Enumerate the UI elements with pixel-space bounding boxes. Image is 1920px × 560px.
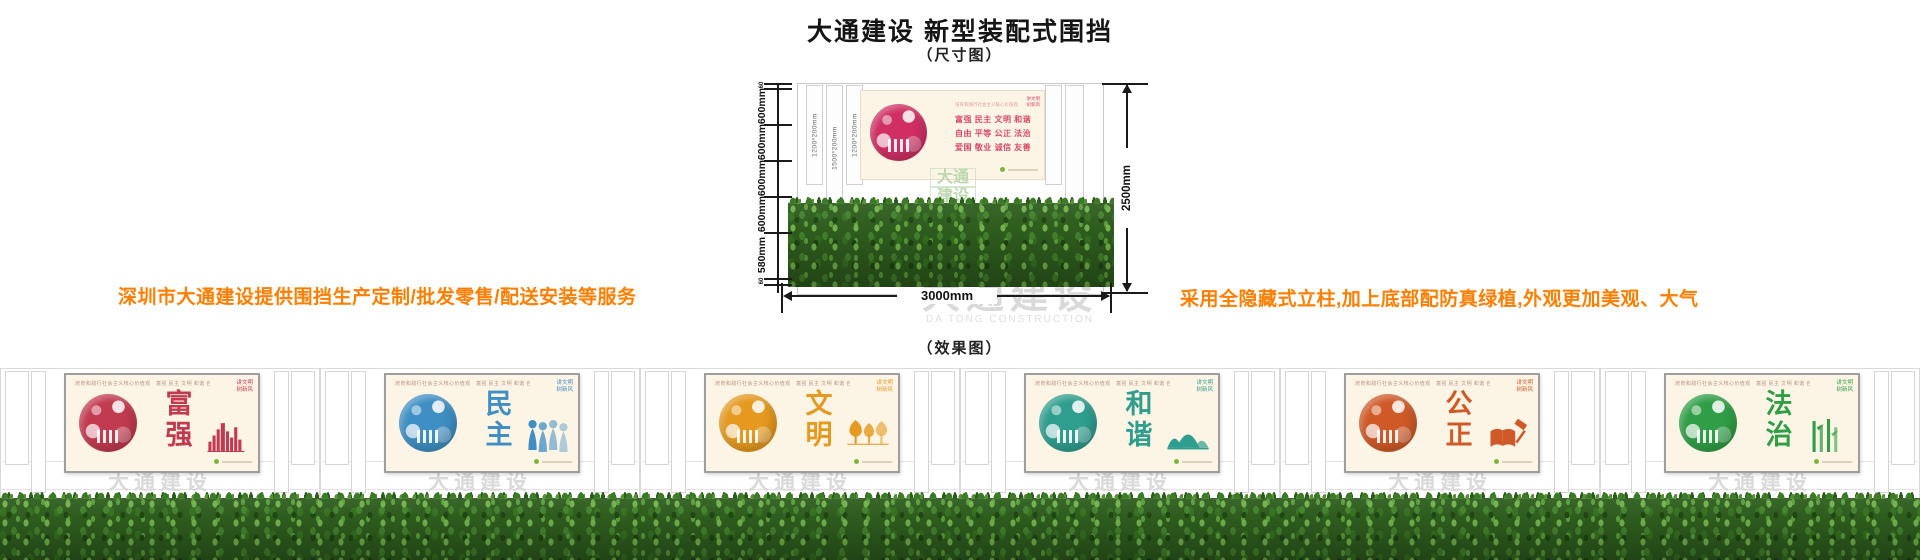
ruler-tick <box>764 284 792 286</box>
panel-corner-text: 讲文明 树新风 <box>876 380 893 394</box>
effect-caption: （效果图） <box>0 337 1920 358</box>
green-dot-icon <box>1000 167 1005 172</box>
hidden-post <box>611 371 635 465</box>
arrow-down-icon <box>1122 283 1132 292</box>
papercut-circle-illustration <box>1039 394 1097 452</box>
panel-footer-mark <box>534 459 572 464</box>
motif-icon <box>1167 419 1209 452</box>
left-ruler-line <box>777 83 779 293</box>
ruler-label: 60 <box>756 261 768 301</box>
motif-icon <box>847 419 889 452</box>
panel-footer-mark <box>1494 459 1532 464</box>
panel-corner-text: 讲文明 树新风 <box>1196 380 1213 394</box>
motif-icon <box>207 419 249 452</box>
panel-corner-text: 讲文明 树新风 <box>1027 96 1041 108</box>
hidden-post <box>1891 371 1915 465</box>
value-panel: 培育和践行社会主义核心价值观 富强 民主 文明 和谐 自由 平等 公正 法治 爱… <box>1024 373 1220 473</box>
poster-canvas: 大通建设 新型装配式围挡 （尺寸图） （效果图） 深圳市大通建设提供围挡生产定制… <box>0 0 1920 560</box>
ruler-tick <box>764 196 792 198</box>
hidden-post <box>1285 371 1309 465</box>
hidden-post <box>965 371 989 465</box>
green-dot-icon <box>1814 459 1819 464</box>
ruler-label: 600mm <box>756 194 768 234</box>
panel-header-text: 培育和践行社会主义核心价值观 富强 民主 文明 和谐 自由 平等 公正 法治 爱… <box>75 380 210 387</box>
value-word: 法 治 <box>1763 389 1795 451</box>
core-values-text: 富强 民主 文明 和谐 自由 平等 公正 法治 爱国 敬业 诚信 友善 <box>955 113 1031 155</box>
panel-corner-text: 讲文明 树新风 <box>1836 380 1853 394</box>
ruler-tick <box>764 232 792 234</box>
panel-corner-text: 讲文明 树新风 <box>556 380 573 394</box>
value-panel: 培育和践行社会主义核心价值观 富强 民主 文明 和谐 自由 平等 公正 法治 爱… <box>1664 373 1860 473</box>
panel-header-text: 培育和践行社会主义核心价值观 富强 民主 文明 和谐 自由 平等 公正 法治 爱… <box>1675 380 1810 387</box>
footer-line <box>1502 461 1532 463</box>
papercut-circle-illustration <box>399 394 457 452</box>
hidden-post <box>1605 371 1629 465</box>
footer-line <box>862 461 892 463</box>
width-dim-label: 3000mm <box>897 288 997 304</box>
ruler-label: 600mm <box>756 158 768 198</box>
papercut-circle-illustration <box>1359 394 1417 452</box>
watermark-en: DA TONG CONSTRUCTION <box>820 314 1200 325</box>
hidden-post <box>931 371 955 465</box>
panel-corner-text: 讲文明 树新风 <box>1516 380 1533 394</box>
hidden-post <box>325 371 349 465</box>
hidden-post <box>645 371 669 465</box>
green-dot-icon <box>1494 459 1499 464</box>
value-panel: 培育和践行社会主义核心价值观 富强 民主 文明 和谐 自由 平等 公正 法治 爱… <box>384 373 580 473</box>
hidden-post <box>1251 371 1275 465</box>
papercut-circle-illustration <box>719 394 777 452</box>
value-word: 文 明 <box>803 389 835 451</box>
footer-line <box>1182 461 1212 463</box>
motif-icon <box>527 419 569 452</box>
value-word: 公 正 <box>1443 389 1475 451</box>
hidden-post <box>1571 371 1595 465</box>
hidden-post <box>291 371 315 465</box>
ruler-label: 600mm <box>756 122 768 162</box>
panel-header-text: 培育和践行社会主义核心价值观 富强 民主 文明 和谐 自由 平等 公正 法治 爱… <box>1035 380 1170 387</box>
ruler-tick <box>764 124 792 126</box>
diagram-value-panel: 培育和践行社会主义核心价值观 富强 民主 文明 和谐 自由 平等 公正 法治 爱… <box>860 90 1045 180</box>
ruler-label: 600mm <box>756 86 768 126</box>
value-word: 和 谐 <box>1123 389 1155 451</box>
value-word: 民 主 <box>483 389 515 451</box>
dim-extension-line <box>1110 283 1112 313</box>
papercut-circle-illustration <box>870 104 927 161</box>
footer-line <box>1008 169 1038 171</box>
value-panel: 培育和践行社会主义核心价值观 富强 民主 文明 和谐 自由 平等 公正 法治 爱… <box>1344 373 1540 473</box>
arrow-up-icon <box>1122 84 1132 93</box>
value-word: 富 强 <box>163 389 195 451</box>
ruler-tick <box>764 160 792 162</box>
arrow-left-icon <box>783 291 792 301</box>
value-panel: 培育和践行社会主义核心价值观 富强 民主 文明 和谐 自由 平等 公正 法治 爱… <box>704 373 900 473</box>
panel-header-text: 培育和践行社会主义核心价值观 富强 民主 文明 和谐 自由 平等 公正 法治 爱… <box>715 380 850 387</box>
green-dot-icon <box>214 459 219 464</box>
ruler-tick <box>764 83 792 85</box>
panel-footer-mark <box>1000 167 1038 172</box>
green-dot-icon <box>1174 459 1179 464</box>
value-panel: 培育和践行社会主义核心价值观 富强 民主 文明 和谐 自由 平等 公正 法治 爱… <box>64 373 260 473</box>
papercut-circle-illustration <box>79 394 137 452</box>
motif-icon <box>1807 419 1849 452</box>
artificial-hedge <box>788 203 1114 287</box>
footer-line <box>222 461 252 463</box>
panel-corner-text: 讲文明 树新风 <box>236 380 253 394</box>
panel-footer-mark <box>854 459 892 464</box>
panel-header-text: 培育和践行社会主义核心价值观 富强 民主 文明 和谐 自由 平等 公正 法治 爱… <box>395 380 530 387</box>
hidden-post <box>5 371 29 465</box>
footer-line <box>542 461 572 463</box>
green-dot-icon <box>854 459 859 464</box>
height-dim-label: 2500mm <box>1120 148 1134 228</box>
panel-footer-mark <box>214 459 252 464</box>
panel-footer-mark <box>1174 459 1212 464</box>
panel-footer-mark <box>1814 459 1852 464</box>
green-dot-icon <box>534 459 539 464</box>
artificial-hedge-strip <box>0 498 1920 560</box>
ruler-tick <box>764 88 792 90</box>
papercut-circle-illustration <box>1679 394 1737 452</box>
motif-icon <box>1487 419 1529 452</box>
panel-header-text: 培育和践行社会主义核心价值观 富强 民主 文明 和谐 自由 平等 公正 法治 爱… <box>1355 380 1490 387</box>
ruler-tick <box>764 278 792 280</box>
arrow-right-icon <box>1101 291 1110 301</box>
footer-line <box>1822 461 1852 463</box>
